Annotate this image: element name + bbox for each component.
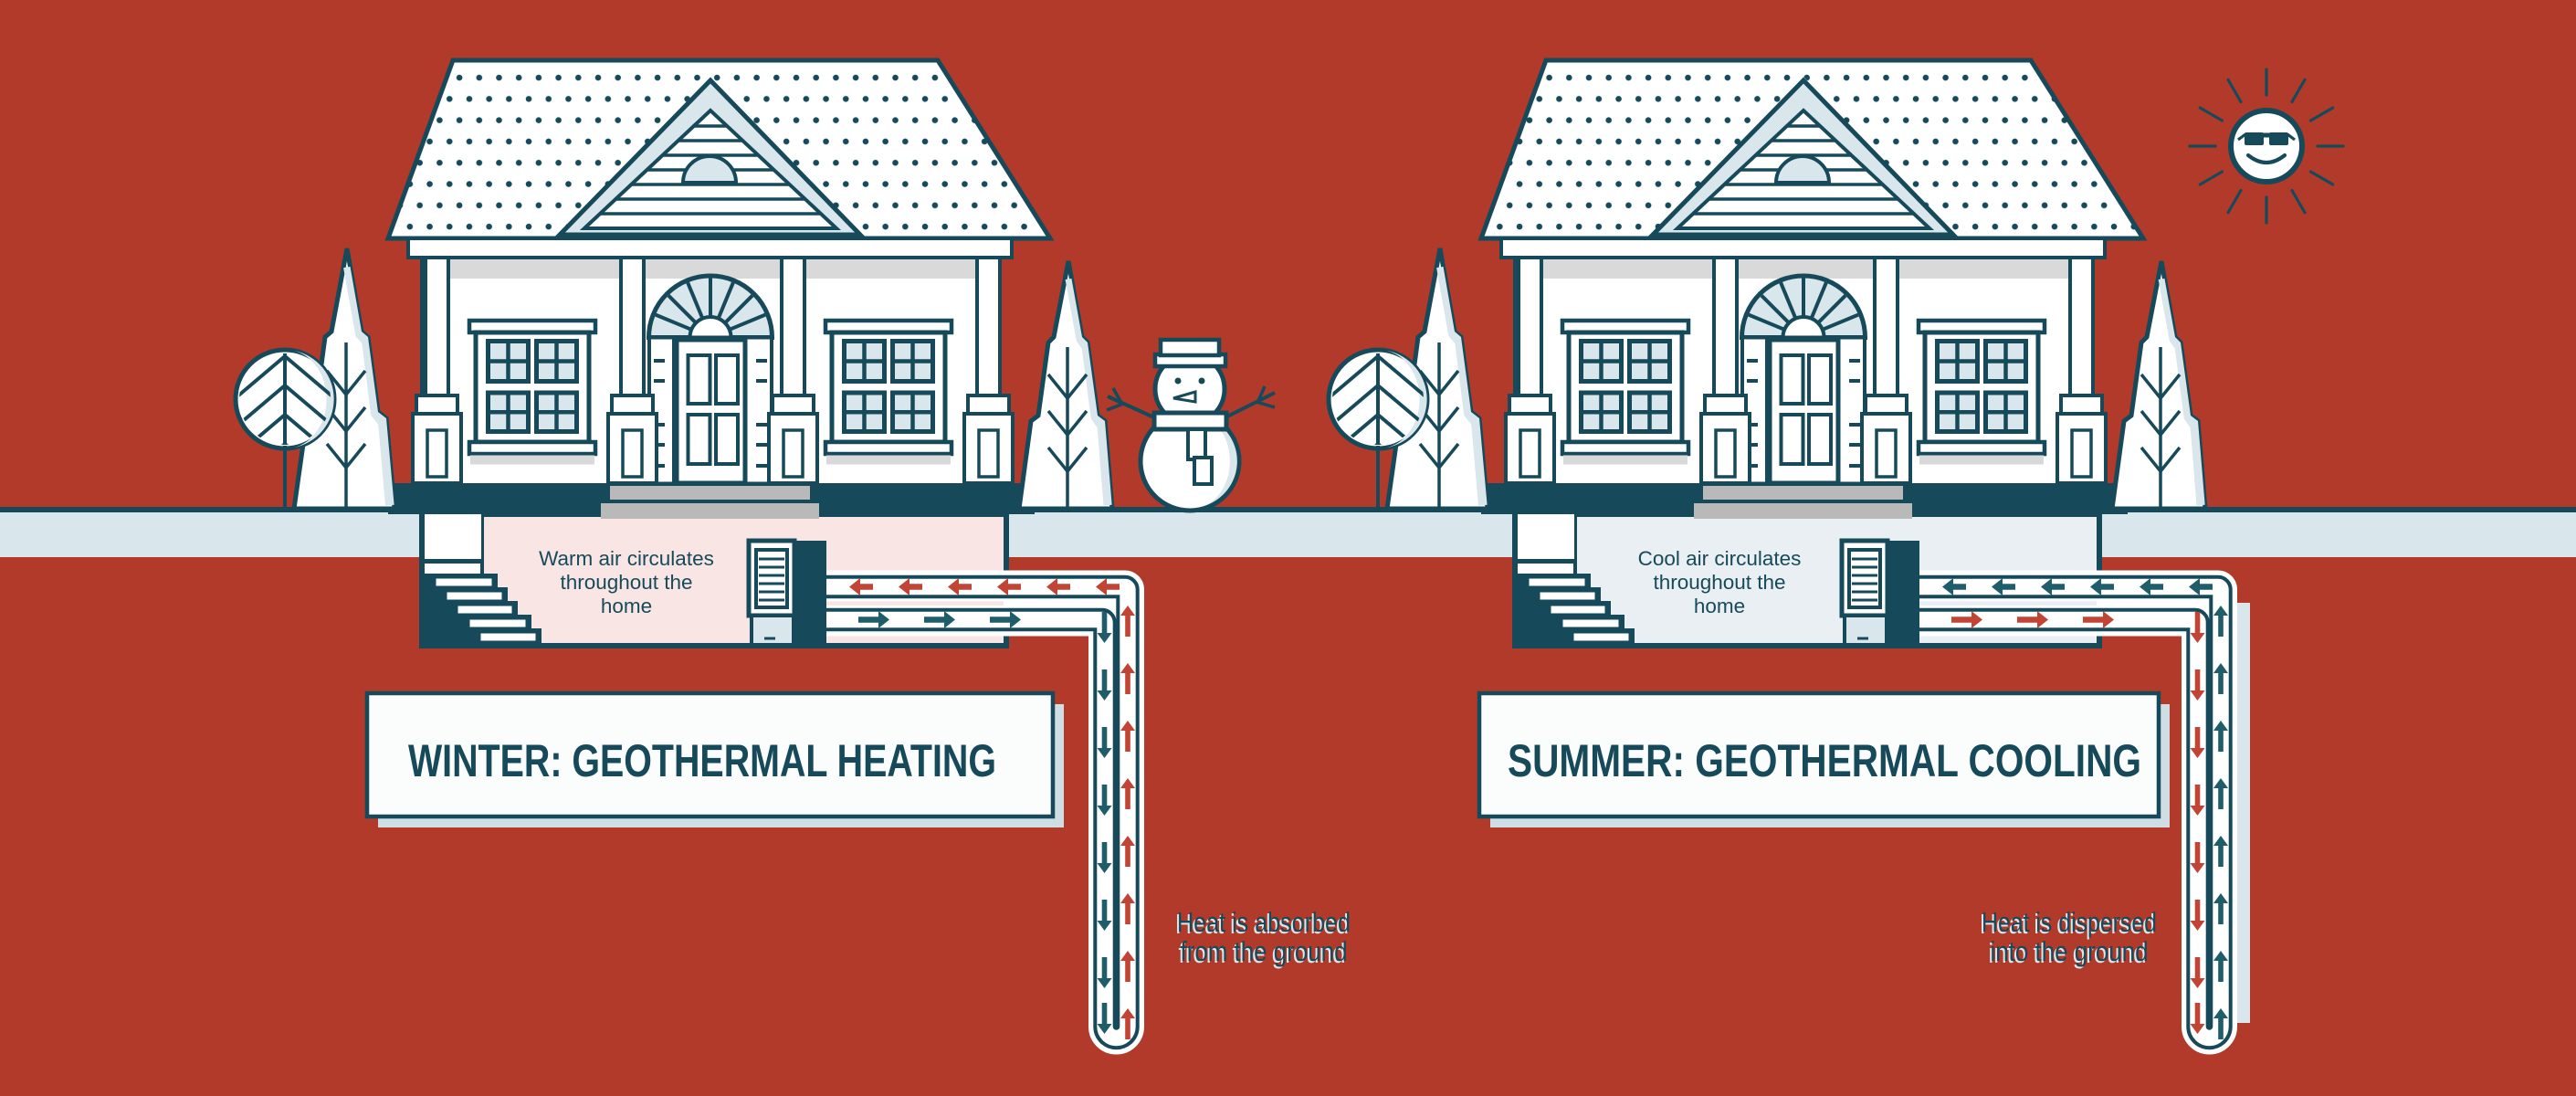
svg-text:SUMMER: GEOTHERMAL COOLING: SUMMER: GEOTHERMAL COOLING — [1508, 735, 2141, 786]
svg-text:throughout the: throughout the — [1653, 571, 1785, 594]
svg-text:Cool air circulates: Cool air circulates — [1638, 547, 1802, 570]
svg-text:throughout the: throughout the — [560, 571, 692, 594]
svg-text:home: home — [601, 595, 652, 617]
svg-text:Heat is absorbed: Heat is absorbed — [1177, 906, 1351, 938]
svg-text:Heat is dispersed: Heat is dispersed — [1982, 906, 2157, 938]
svg-text:from the ground: from the ground — [1181, 935, 1348, 967]
svg-text:into the ground: into the ground — [1991, 935, 2149, 967]
svg-text:home: home — [1694, 595, 1745, 617]
svg-text:WINTER: GEOTHERMAL HEATING: WINTER: GEOTHERMAL HEATING — [408, 735, 996, 786]
svg-text:Warm air circulates: Warm air circulates — [539, 547, 714, 570]
